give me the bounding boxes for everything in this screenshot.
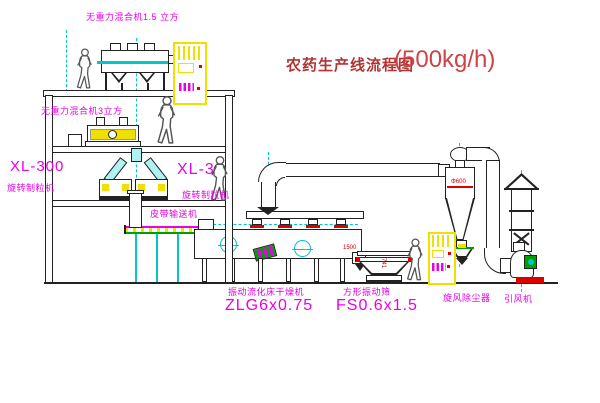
exhaust-duct-horizontal [283, 163, 440, 177]
port-flange [250, 225, 264, 228]
dryer-leg [286, 258, 291, 282]
exhaust-duct-vertical [261, 178, 276, 208]
label-mixer-mid: 无重力混合机3立方 [41, 107, 123, 116]
sieve-base-band [366, 280, 402, 283]
mixer1-hopper [139, 73, 155, 83]
fan-base [516, 277, 544, 283]
dryer-leg [258, 258, 263, 282]
indicator-dot [199, 65, 202, 68]
conveyor-leg [177, 234, 179, 282]
label-dryer-model: ZLG6x0.75 [225, 298, 313, 314]
diagram-title-capacity: (500kg/h) [394, 46, 495, 74]
indicator-dot [447, 265, 450, 268]
mixer1-leg [147, 83, 149, 90]
label-sieve-model: FS0.6x1.5 [336, 298, 418, 314]
mixer2-hub [108, 130, 117, 139]
stack-cap-base [504, 188, 539, 190]
cyclone-red-band [447, 186, 473, 188]
cabinet-panel-text [179, 83, 194, 91]
port-flange [334, 225, 348, 228]
fan-motor-hub [528, 259, 534, 265]
dryer-leg [314, 258, 319, 282]
mixer2-pedestal [68, 134, 82, 147]
conveyor-leg [135, 234, 137, 282]
label-granulator-right: 旋转制粒机 [182, 191, 230, 200]
label-mixer-top: 无重力混合机1.5 立方 [86, 13, 179, 22]
down-pipe [129, 193, 142, 228]
dim-sieve-height: 741 [380, 258, 386, 268]
cabinet-vent-slots [178, 46, 202, 60]
indicator-dot [448, 252, 451, 255]
port-flange [306, 225, 320, 228]
label-fan: 引风机 [504, 295, 533, 304]
dim-sieve-length: 1500 [343, 245, 356, 251]
label-sieve: 方形振动筛 [343, 288, 391, 297]
cyclone-tip [456, 258, 468, 265]
discharge-valve-dot [458, 244, 466, 248]
cabinet-vent-slots [432, 235, 452, 247]
mixer1-hopper [111, 73, 127, 83]
person-figure [153, 96, 180, 146]
mixer2-base [85, 141, 141, 147]
port-flange [278, 225, 292, 228]
person-figure [404, 237, 426, 284]
label-belt-conveyor: 皮带输送机 [150, 210, 198, 219]
label-xl300-left: XL-300 [10, 159, 64, 174]
mixer1-shaft-line [97, 61, 173, 64]
pipe-vertical [486, 160, 500, 252]
mixer1-leg [105, 73, 107, 90]
cyclone-dia-label: Φ600 [451, 179, 466, 185]
process-flow-diagram: 1500 741 Φ600 [0, 0, 600, 403]
y-duct-stem [131, 148, 142, 162]
indicator-dot [197, 87, 200, 90]
dryer-leg [202, 258, 207, 282]
person-figure [74, 47, 95, 92]
label-dryer: 振动流化床干燥机 [228, 288, 304, 297]
vibration-motor-symbol [294, 240, 311, 257]
stack-flange [509, 210, 534, 212]
cabinet-subpanel [432, 250, 444, 258]
mixer1-leg [163, 73, 165, 90]
label-cyclone: 旋风除尘器 [443, 294, 491, 303]
ground-line [44, 282, 558, 284]
mixer1-leg [121, 83, 123, 90]
centerline [66, 30, 67, 92]
cabinet-panel-text [432, 263, 446, 271]
dryer-hood [246, 211, 364, 219]
stack-flange [509, 229, 534, 231]
belt-end-plate [124, 225, 126, 234]
dryer-leg [340, 258, 345, 282]
conveyor-leg [156, 234, 158, 282]
stack-rain-cap [504, 173, 539, 189]
sieve-frame [357, 251, 411, 256]
cabinet-subpanel [178, 63, 194, 73]
label-granulator-left: 旋转制粒机 [7, 184, 55, 193]
